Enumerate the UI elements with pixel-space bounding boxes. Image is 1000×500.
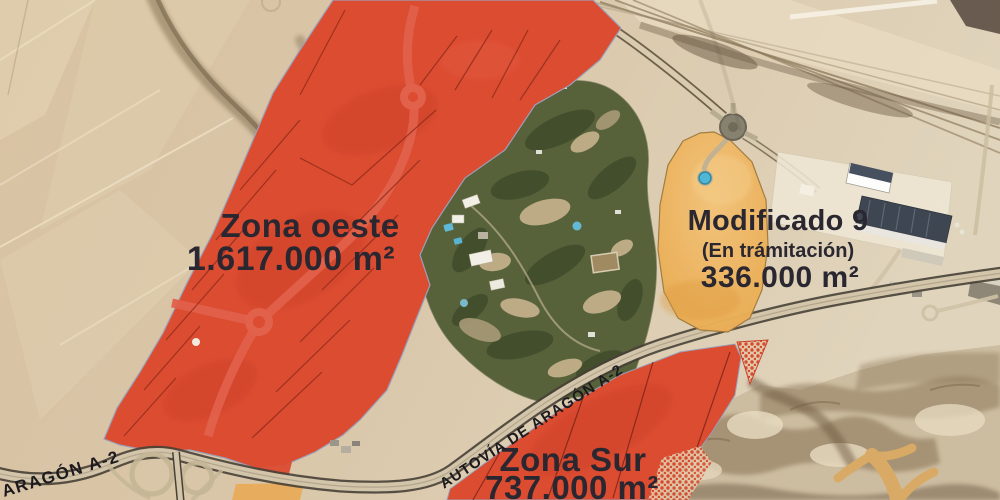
- square-pond: [591, 252, 619, 272]
- aerial-zoning-map: Zona oeste 1.617.000 m² Modificado 9 (En…: [0, 0, 1000, 500]
- zona-sur-area: 737.000 m²: [485, 469, 659, 500]
- pond: [699, 172, 711, 184]
- modificado-9-status: (En trámitación): [702, 240, 854, 262]
- modificado-9-label: Modificado 9: [688, 205, 869, 237]
- map-image: Zona oeste 1.617.000 m² Modificado 9 (En…: [0, 0, 1000, 500]
- modificado-9-area: 336.000 m²: [701, 261, 859, 294]
- white-dot: [192, 338, 200, 346]
- zona-oeste-label: Zona oeste: [220, 207, 399, 244]
- zona-oeste-area: 1.617.000 m²: [187, 240, 395, 278]
